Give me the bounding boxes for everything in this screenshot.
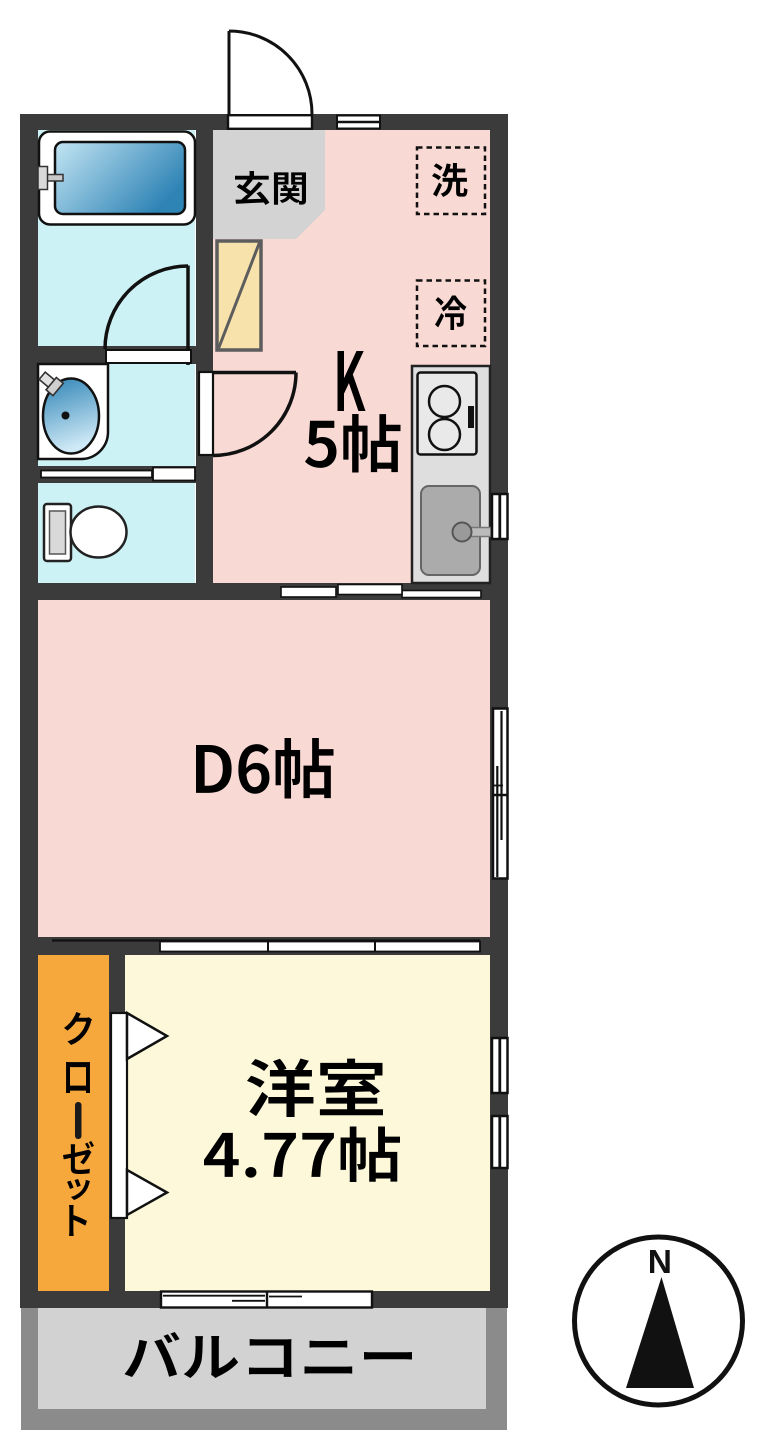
svg-text:N: N	[648, 1244, 672, 1281]
